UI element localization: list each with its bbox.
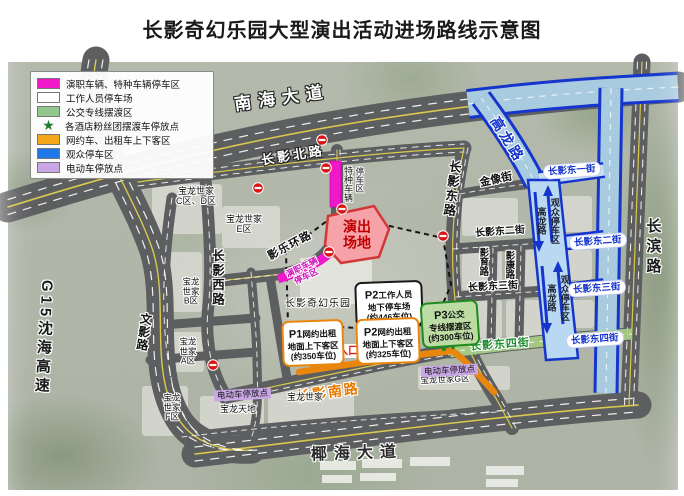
performance-venue-label: 演出 场地 [343, 219, 371, 250]
star-icon: ★ [37, 120, 60, 131]
white-swatch [37, 92, 60, 103]
p2-taxi-dropoff-box: P2网约出租 地面上下客区 (约325车位) [355, 317, 421, 365]
green-swatch [37, 106, 60, 117]
spectator-strip-text-2: 观众停车区 高龙路 [544, 275, 571, 321]
block-label-cd: 宝龙世家 C区、D区 [176, 186, 216, 206]
block-label-e: 宝龙世家 E区 [226, 214, 262, 234]
park-label: 长影奇幻乐园 [285, 298, 351, 309]
legend-row-spectator-parking: 观众停车区 [37, 147, 207, 160]
p3-line1: 公交 [447, 309, 465, 320]
block-label-tiandi: 宝龙天地 [220, 404, 256, 414]
p3-bus-shuttle-box: P3公交 专线摆渡区 (约300车位) [419, 299, 480, 349]
legend-row-staff-parking: 工作人员停车场 [37, 91, 207, 104]
legend-label: 电动车停放点 [66, 161, 123, 175]
p2-staff-line1: 工作人员 [378, 289, 412, 300]
p3-tag: P3 [434, 309, 448, 322]
p3-line3: (约300车位) [426, 331, 477, 344]
p2-line1: 网约出租 [377, 326, 411, 337]
legend-panel: 演职车辆、特种车辆停车区 工作人员停车场 公交专线摆渡区 ★ 各酒店粉丝团摆渡车… [30, 71, 214, 179]
legend-row-bus-shuttle: 公交专线摆渡区 [37, 105, 207, 118]
legend-label: 公交专线摆渡区 [66, 105, 133, 119]
legend-label: 工作人员停车场 [66, 91, 133, 105]
p2-tag: P2 [364, 326, 378, 338]
legend-row-cast-vehicles: 演职车辆、特种车辆停车区 [37, 77, 207, 90]
special-vehicle-label: 特种车辆 [343, 166, 353, 202]
legend-label: 观众停车区 [66, 147, 114, 161]
p1-line1: 网约出租 [302, 328, 336, 339]
road-label-changbin: 长滨路 [644, 218, 661, 278]
legend-row-taxi: 网约车、出租车上下客区 [37, 133, 207, 146]
block-label-b: 宝龙 世家 B区 [182, 278, 199, 307]
p1-tag: P1 [289, 328, 303, 340]
road-label-yingyu: 影育路 [477, 248, 488, 277]
p2-line3: (约325车位) [360, 349, 416, 361]
legend-row-fan-shuttle: ★ 各酒店粉丝团摆渡车停放点 [37, 119, 207, 132]
legend-label: 网约车、出租车上下客区 [66, 133, 171, 147]
p2-staff-tag: P2 [365, 289, 379, 301]
road-label-yehai: 椰海大道 [311, 443, 404, 464]
p1-line3: (约350车位) [286, 351, 340, 363]
block-label-a: 宝龙 世家 A区 [179, 338, 196, 367]
block-label-baolong: 宝龙世家 [287, 392, 323, 402]
special-vehicle-parking-label: 停车区 [354, 167, 364, 193]
purple-swatch [37, 162, 60, 173]
blue-swatch [37, 148, 60, 159]
orange-swatch [37, 134, 60, 145]
legend-row-ev-parking: 电动车停放点 [37, 161, 207, 174]
legend-label: 各酒店粉丝团摆渡车停放点 [65, 119, 179, 133]
magenta-swatch [37, 78, 60, 89]
spectator-strip-text-1: 观众停车区 高龙路 [534, 198, 561, 244]
road-label-yingkang: 影康路 [503, 251, 514, 280]
road-label-changying-west: 长影西路 [210, 249, 224, 307]
legend-label: 演职车辆、特种车辆停车区 [66, 77, 180, 91]
route-map-page: 长影奇幻乐园大型演出活动进场路线示意图 [0, 0, 684, 496]
p1-taxi-dropoff-box: P1网约出租 地面上下客区 (约350车位) [281, 319, 345, 367]
block-label-f: 宝龙 世家 F区 [163, 394, 180, 423]
